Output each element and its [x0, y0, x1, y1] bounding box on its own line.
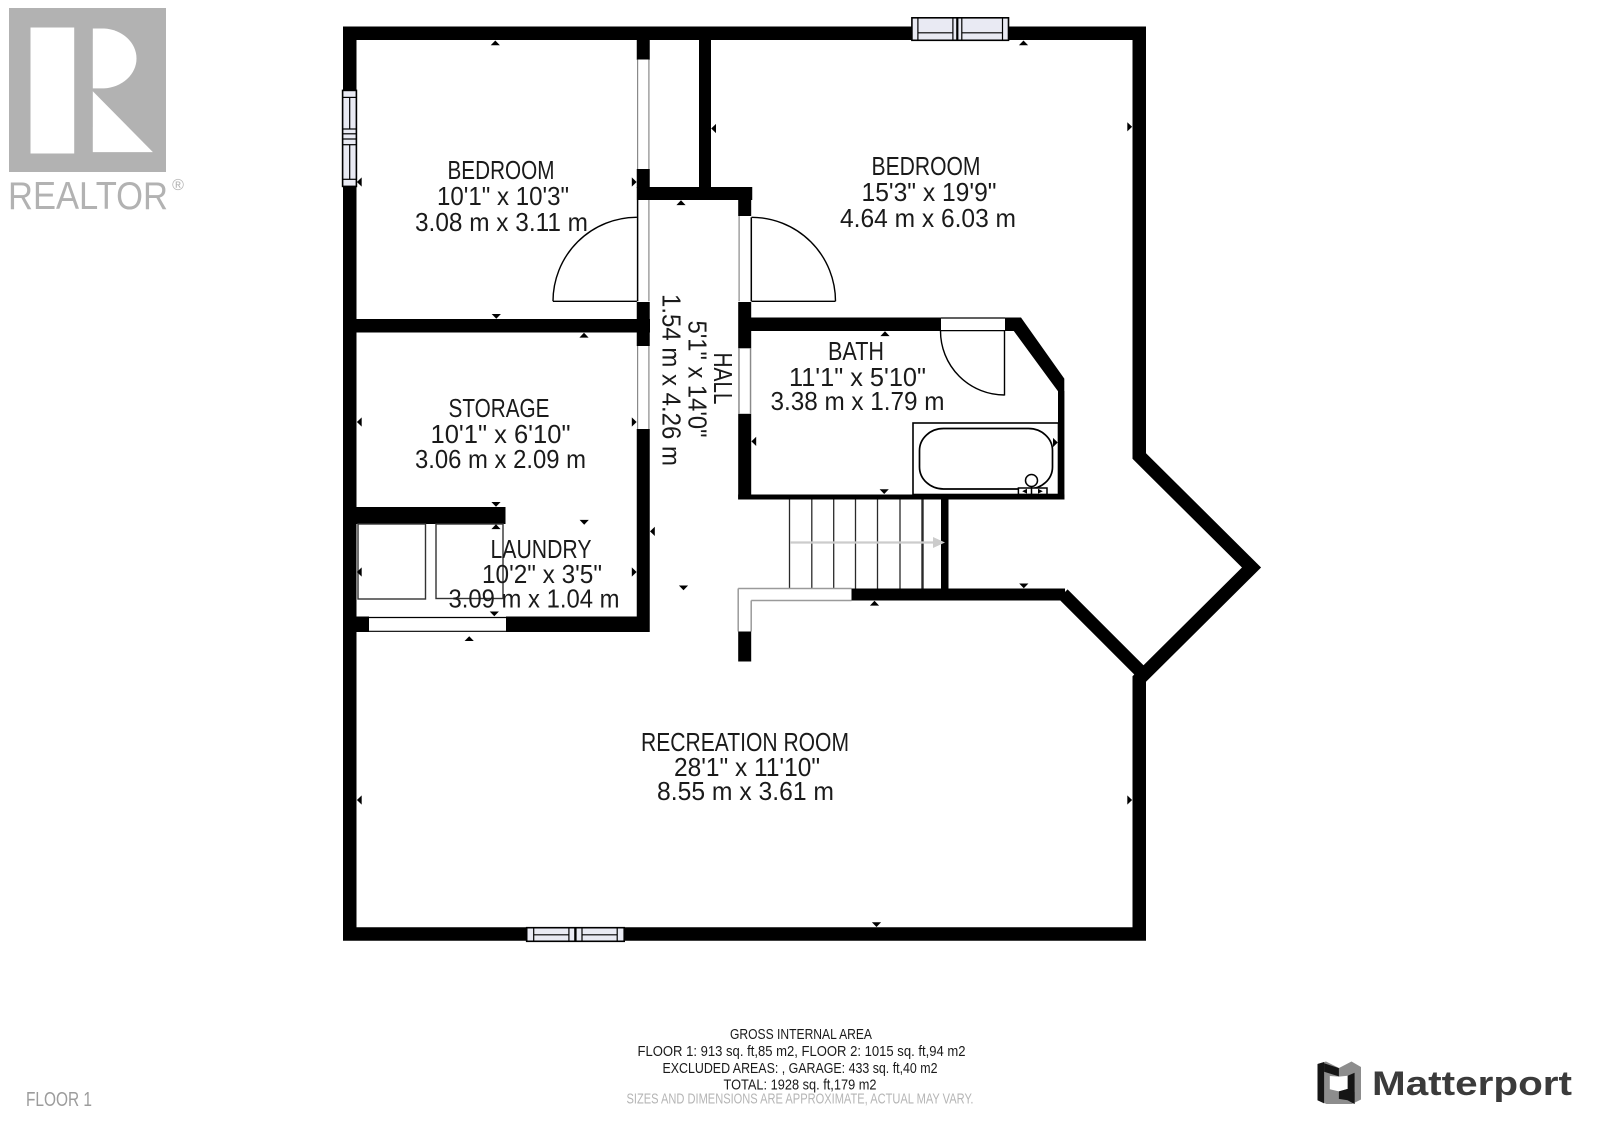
svg-text:SIZES AND DIMENSIONS ARE APPRO: SIZES AND DIMENSIONS ARE APPROXIMATE, AC…: [627, 1092, 974, 1108]
svg-text:FLOOR 1: 913 sq. ft,85 m2, FLO: FLOOR 1: 913 sq. ft,85 m2, FLOOR 2: 1015…: [638, 1044, 966, 1060]
svg-text:3.06 m x 2.09 m: 3.06 m x 2.09 m: [415, 444, 586, 474]
svg-text:4.64 m x 6.03 m: 4.64 m x 6.03 m: [840, 203, 1016, 233]
svg-text:REALTOR: REALTOR: [8, 175, 168, 218]
svg-text:GROSS INTERNAL AREA: GROSS INTERNAL AREA: [730, 1027, 872, 1043]
svg-text:EXCLUDED AREAS: , GARAGE: 433: EXCLUDED AREAS: , GARAGE: 433 sq. ft,40 …: [663, 1061, 938, 1077]
svg-text:®: ®: [172, 177, 184, 194]
svg-text:8.55 m x 3.61 m: 8.55 m x 3.61 m: [657, 776, 834, 806]
svg-text:3.09 m x 1.04 m: 3.09 m x 1.04 m: [449, 584, 620, 614]
svg-text:FLOOR 1: FLOOR 1: [26, 1089, 92, 1111]
svg-text:3.38 m x 1.79 m: 3.38 m x 1.79 m: [771, 386, 945, 416]
svg-text:Matterport: Matterport: [1372, 1065, 1573, 1103]
svg-text:1.54 m x 4.26 m: 1.54 m x 4.26 m: [657, 294, 687, 466]
svg-text:3.08 m x 3.11 m: 3.08 m x 3.11 m: [415, 207, 588, 237]
